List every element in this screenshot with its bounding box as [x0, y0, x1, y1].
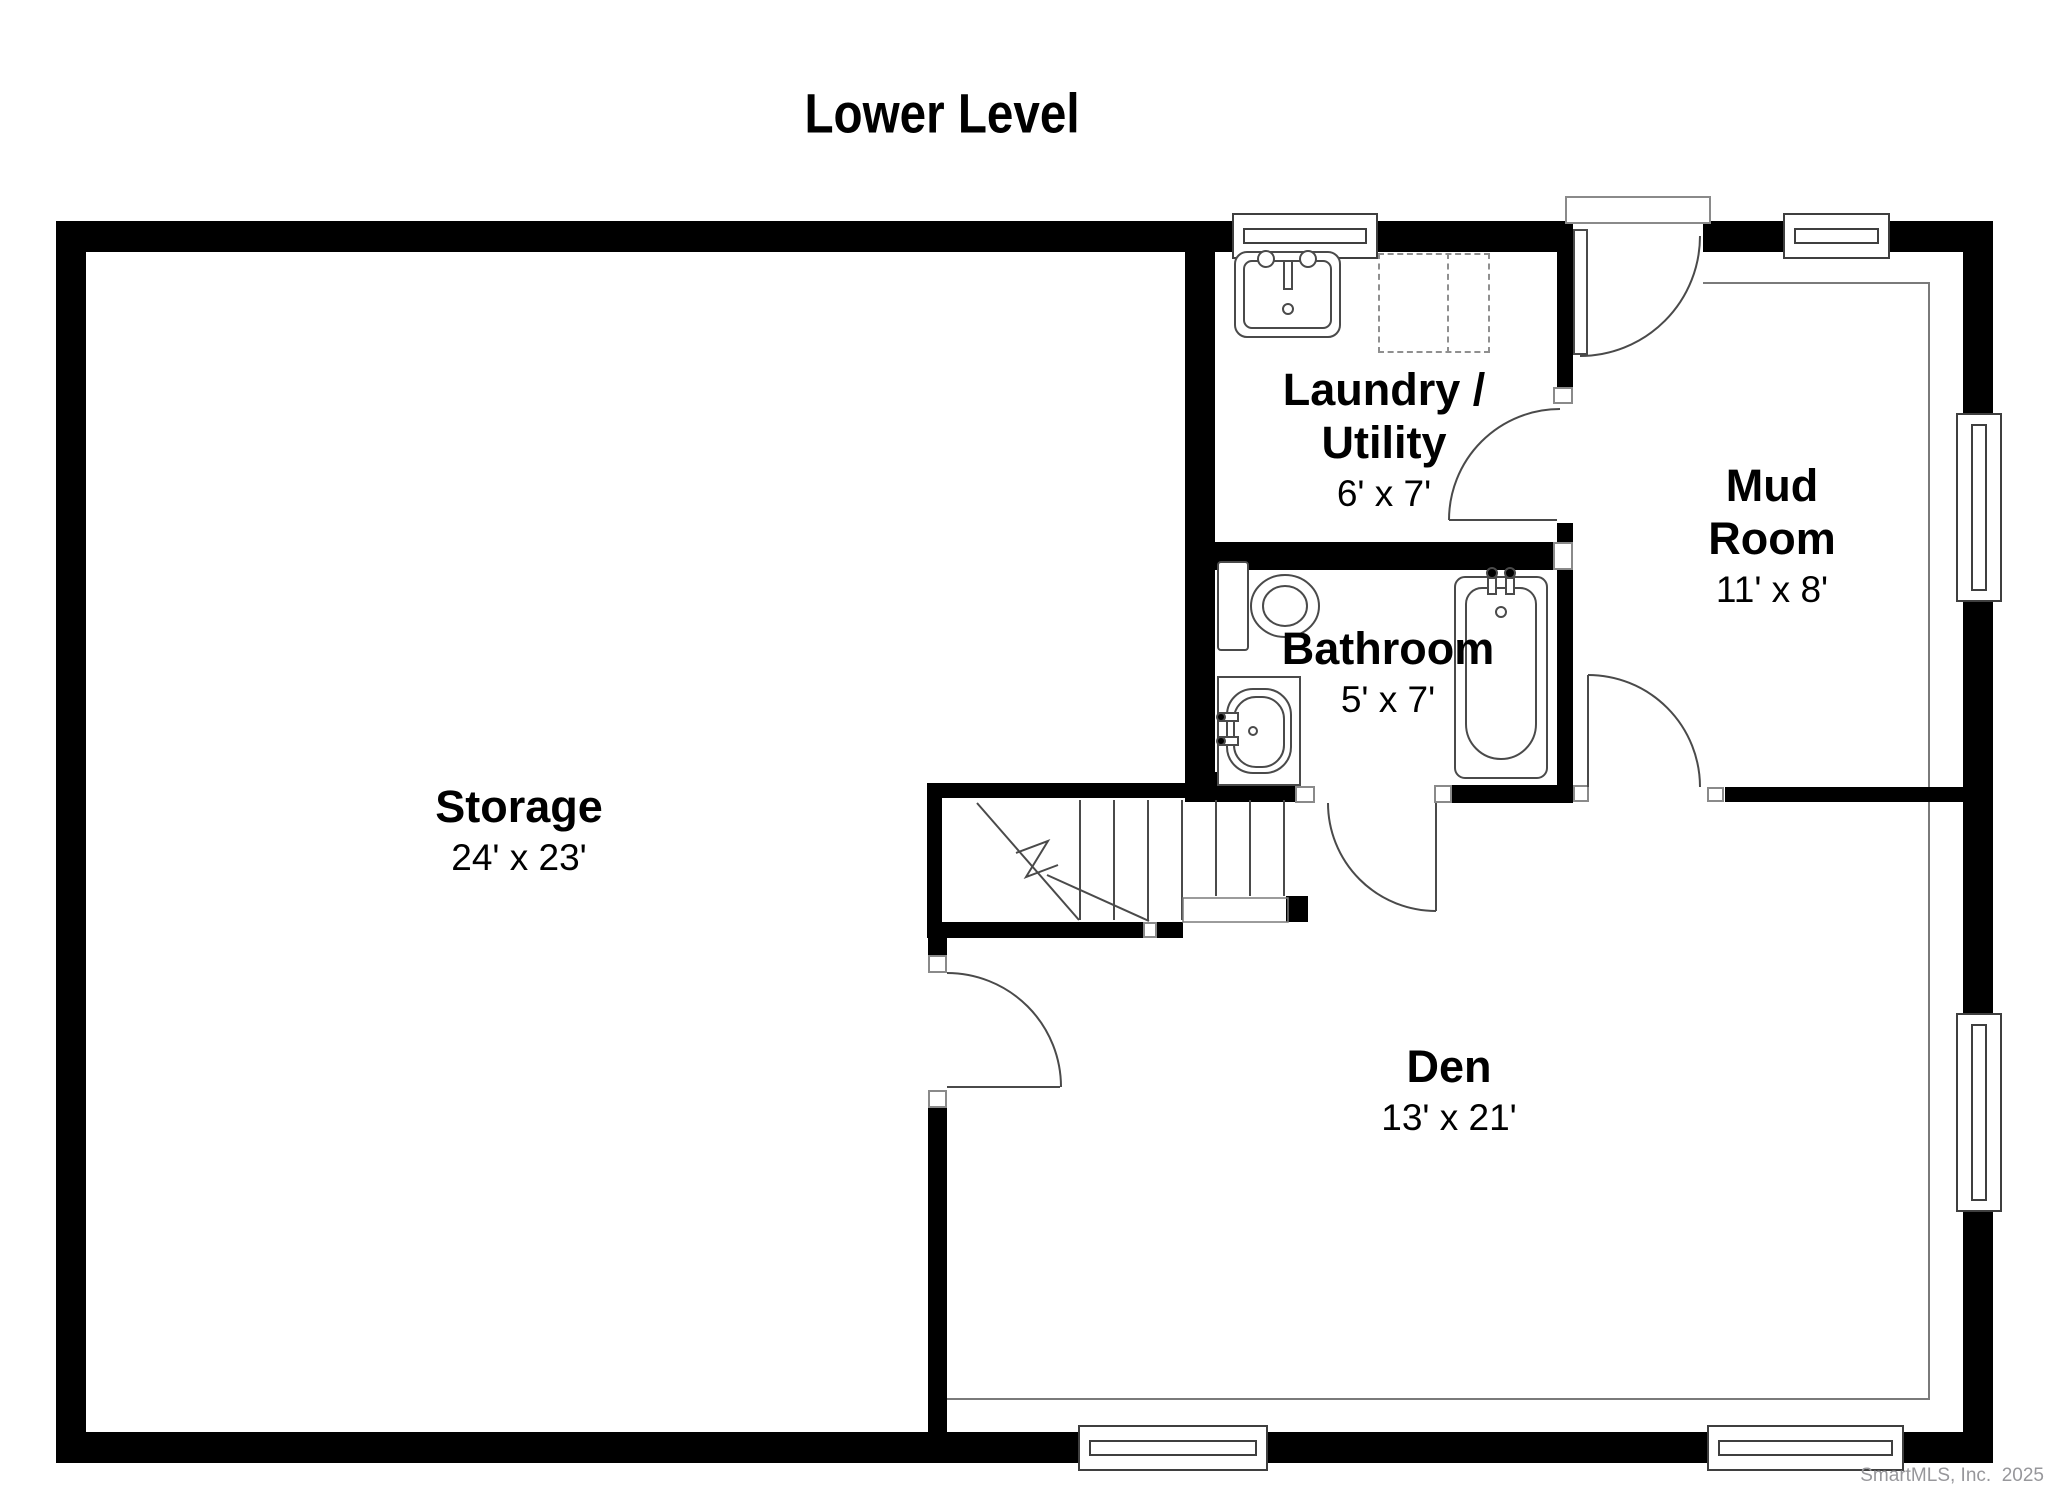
room-name: Room	[1708, 512, 1836, 565]
room-dims: 13' x 21'	[1381, 1096, 1517, 1140]
room-name: Den	[1381, 1040, 1517, 1093]
mudroom-den-door	[1588, 675, 1700, 787]
room-label-storage: Storage 24' x 23'	[435, 780, 603, 880]
room-name: Mud	[1708, 459, 1836, 512]
room-dims: 6' x 7'	[1283, 472, 1486, 516]
bathroom-door	[1328, 803, 1436, 911]
room-label-den: Den 13' x 21'	[1381, 1040, 1517, 1140]
room-name: Laundry /	[1283, 363, 1486, 416]
stair-break-diagonal	[977, 803, 1079, 920]
floor-plan: Lower Level Storage 24' x 23' Laundry / …	[0, 0, 2048, 1489]
laundry-sink	[1235, 251, 1340, 337]
watermark: SmartMLS, Inc. 2025	[1860, 1465, 2044, 1487]
room-name: Bathroom	[1282, 622, 1495, 675]
storage-den-door	[947, 973, 1061, 1087]
staircase	[977, 800, 1288, 922]
room-dims: 24' x 23'	[435, 836, 603, 880]
room-dims: 5' x 7'	[1282, 678, 1495, 722]
stair-landing	[1183, 898, 1288, 922]
page-title: Lower Level	[804, 81, 1079, 146]
room-label-laundry: Laundry / Utility 6' x 7'	[1283, 363, 1486, 517]
room-name: Utility	[1283, 416, 1486, 469]
room-name: Storage	[435, 780, 603, 833]
room-label-mudroom: Mud Room 11' x 8'	[1708, 459, 1836, 613]
mudroom-entry-door	[1574, 230, 1700, 356]
plan-linework	[0, 0, 2048, 1489]
room-dims: 11' x 8'	[1708, 568, 1836, 612]
room-label-bathroom: Bathroom 5' x 7'	[1282, 622, 1495, 722]
